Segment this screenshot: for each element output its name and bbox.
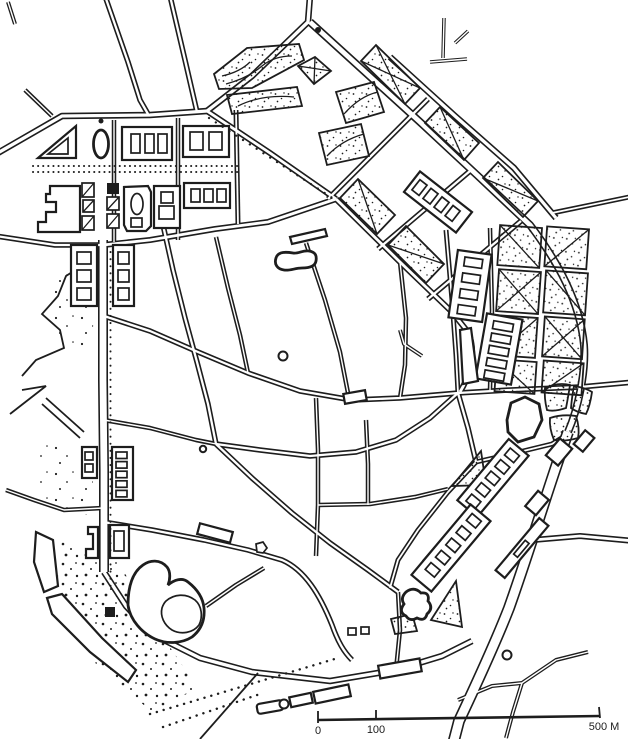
- stepped-building: [38, 186, 80, 232]
- slab-two-courts: [183, 126, 229, 157]
- hatched-parcels-east: [107, 183, 119, 228]
- quatrefoil-building: [401, 589, 430, 619]
- scale-bar-tick: [599, 707, 600, 718]
- oval-building: [94, 130, 109, 158]
- b-shaped-building: [154, 186, 180, 228]
- plaza-ring: [503, 651, 512, 660]
- scale-label-mid: 100: [367, 724, 385, 736]
- court-building: [110, 525, 129, 558]
- lower-boulevard-slab-east: [112, 447, 133, 500]
- slab-three-small-courts: [184, 183, 230, 208]
- junction-dot: [315, 27, 321, 33]
- triangle-building: [38, 126, 76, 158]
- hook-building: [86, 527, 98, 558]
- southeast-slab-lower: [411, 504, 490, 591]
- city-plan-figure: 0 100 500 M: [0, 0, 628, 739]
- wedge-building: [460, 328, 478, 384]
- plaza-ring: [279, 352, 288, 361]
- pond: [275, 251, 316, 270]
- shed: [348, 628, 356, 635]
- scale-label-zero: 0: [315, 725, 321, 737]
- shed: [361, 627, 369, 634]
- theatre-polygon-building: [507, 397, 542, 442]
- pier: [34, 532, 58, 592]
- plaza-ring: [200, 446, 206, 452]
- hatched-parcels-west: [82, 183, 94, 230]
- column-slab-upper: [448, 250, 491, 322]
- slab-three-courts: [122, 127, 172, 160]
- sliver-block: [290, 229, 327, 244]
- boulevard-slab-west: [71, 245, 97, 306]
- jetty-line: [200, 673, 258, 739]
- lower-boulevard-slab-west: [82, 447, 97, 478]
- old-town-features: [197, 229, 369, 635]
- quay-boats: [256, 658, 421, 714]
- scale-label-end: 500 M: [589, 721, 620, 733]
- square-dot: [99, 119, 104, 124]
- monument-square: [105, 607, 115, 617]
- kiosk-blob: [256, 542, 267, 553]
- boulevard-slab-east: [113, 245, 134, 306]
- oval-court-building: [124, 186, 151, 231]
